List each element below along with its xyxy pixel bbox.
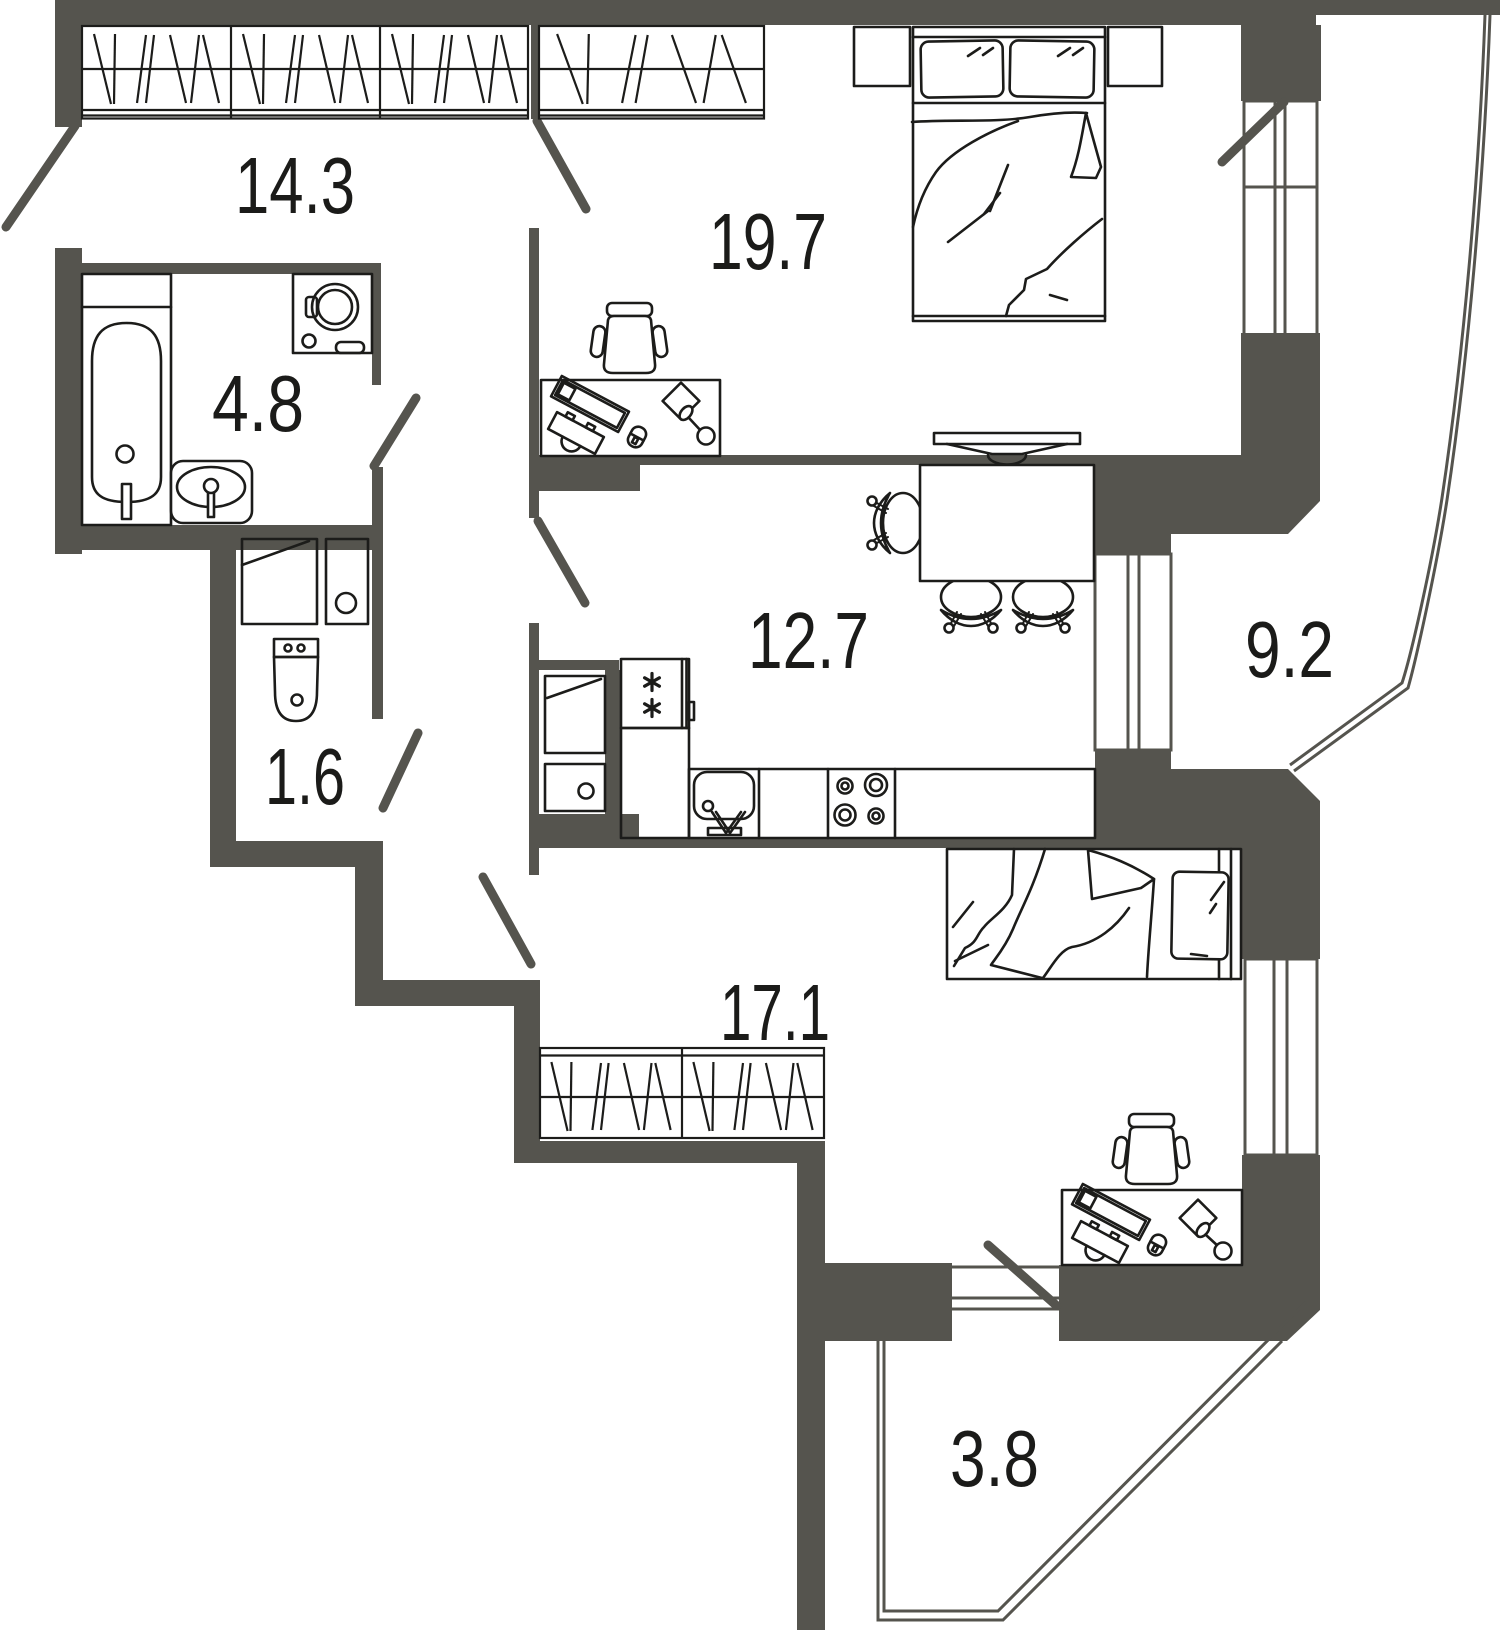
svg-text:3.8: 3.8 — [950, 1414, 1039, 1503]
svg-text:1.6: 1.6 — [265, 732, 345, 821]
svg-text:9.2: 9.2 — [1245, 605, 1334, 694]
svg-text:12.7: 12.7 — [748, 596, 869, 685]
svg-text:17.1: 17.1 — [720, 968, 830, 1057]
svg-text:19.7: 19.7 — [709, 197, 827, 286]
svg-text:4.8: 4.8 — [212, 359, 304, 448]
svg-text:14.3: 14.3 — [235, 141, 355, 230]
